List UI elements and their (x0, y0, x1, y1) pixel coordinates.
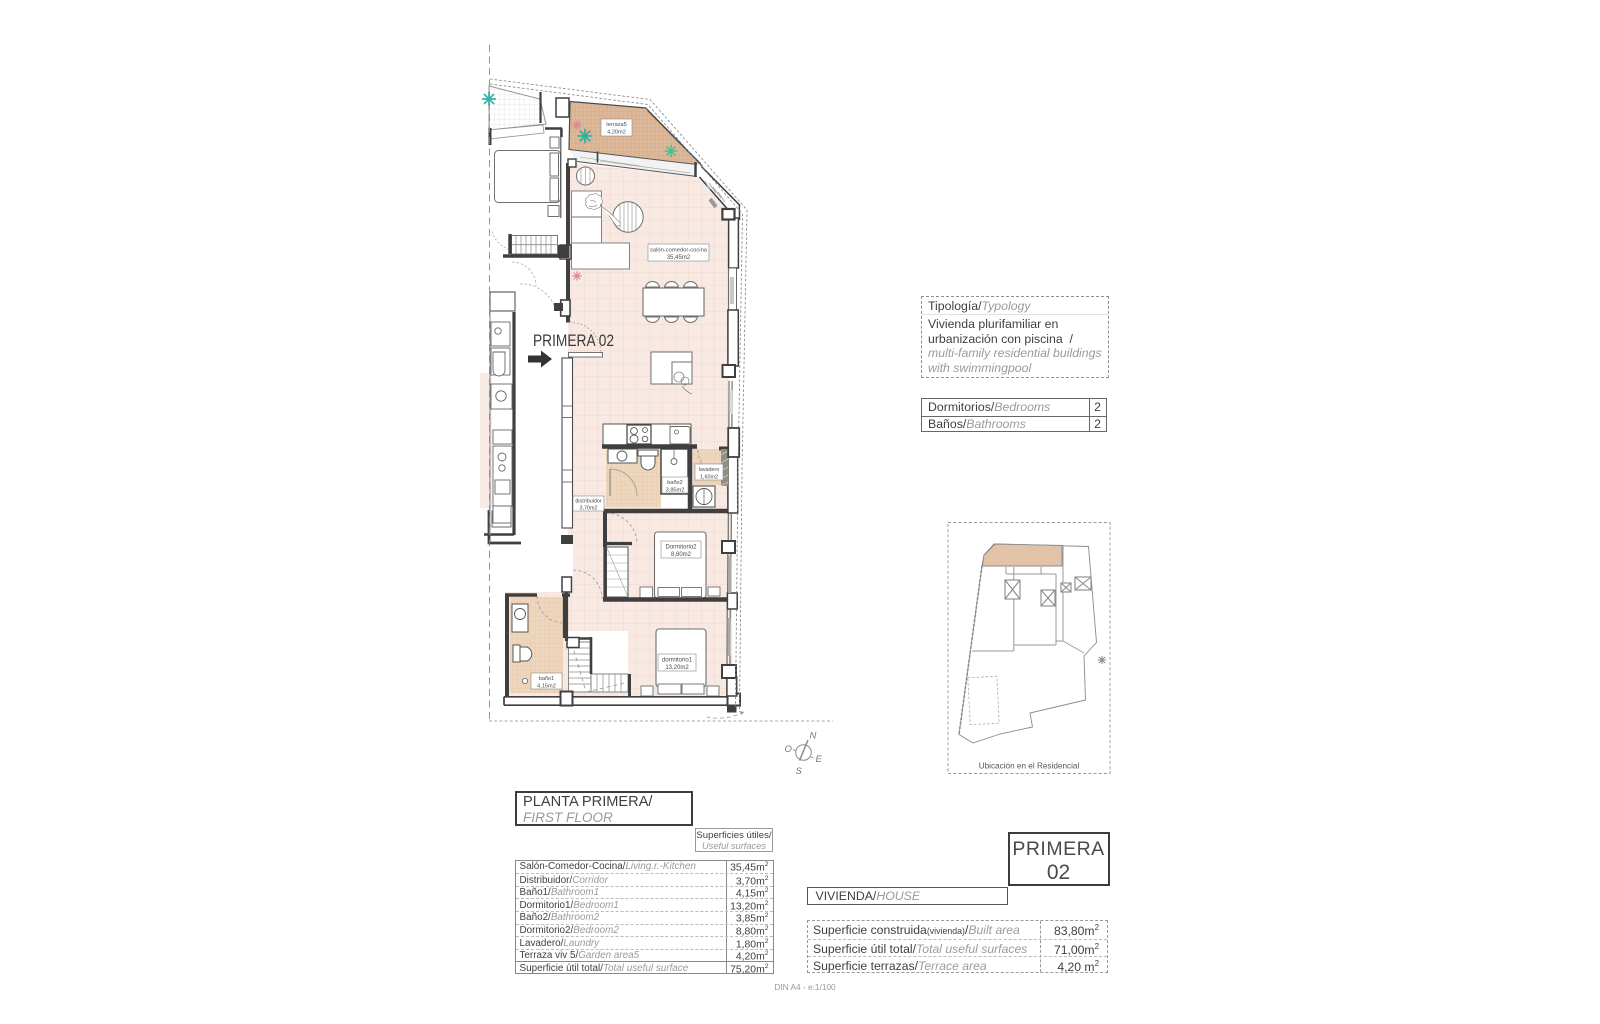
svg-text:salón-comedor-cocina: salón-comedor-cocina (650, 248, 708, 254)
svg-text:8,80m2: 8,80m2 (671, 552, 692, 558)
svg-text:4,15m2: 4,15m2 (537, 684, 556, 690)
svg-text:3,85m2: 3,85m2 (666, 488, 685, 494)
svg-text:E: E (816, 754, 823, 765)
svg-text:distribuidor: distribuidor (575, 499, 602, 505)
svg-text:dormitorio1: dormitorio1 (662, 658, 693, 664)
svg-text:3,70m2: 3,70m2 (580, 506, 598, 512)
svg-text:1,60m2: 1,60m2 (700, 475, 718, 481)
svg-text:PRIMERA 02: PRIMERA 02 (533, 332, 614, 350)
svg-text:lavadero: lavadero (699, 467, 720, 473)
svg-text:N: N (810, 731, 817, 742)
svg-text:baño2: baño2 (667, 480, 683, 486)
svg-text:Dormitorio2: Dormitorio2 (665, 545, 697, 551)
svg-text:baño1: baño1 (539, 676, 555, 682)
svg-text:terraza5: terraza5 (606, 122, 627, 128)
svg-text:Ubicación en el Residencial: Ubicación en el Residencial (979, 762, 1080, 771)
svg-text:35,45m2: 35,45m2 (667, 255, 691, 261)
svg-text:O: O (785, 744, 793, 755)
svg-text:S: S (796, 766, 803, 777)
svg-text:4,20m2: 4,20m2 (607, 130, 626, 136)
svg-text:13,20m2: 13,20m2 (665, 665, 689, 671)
